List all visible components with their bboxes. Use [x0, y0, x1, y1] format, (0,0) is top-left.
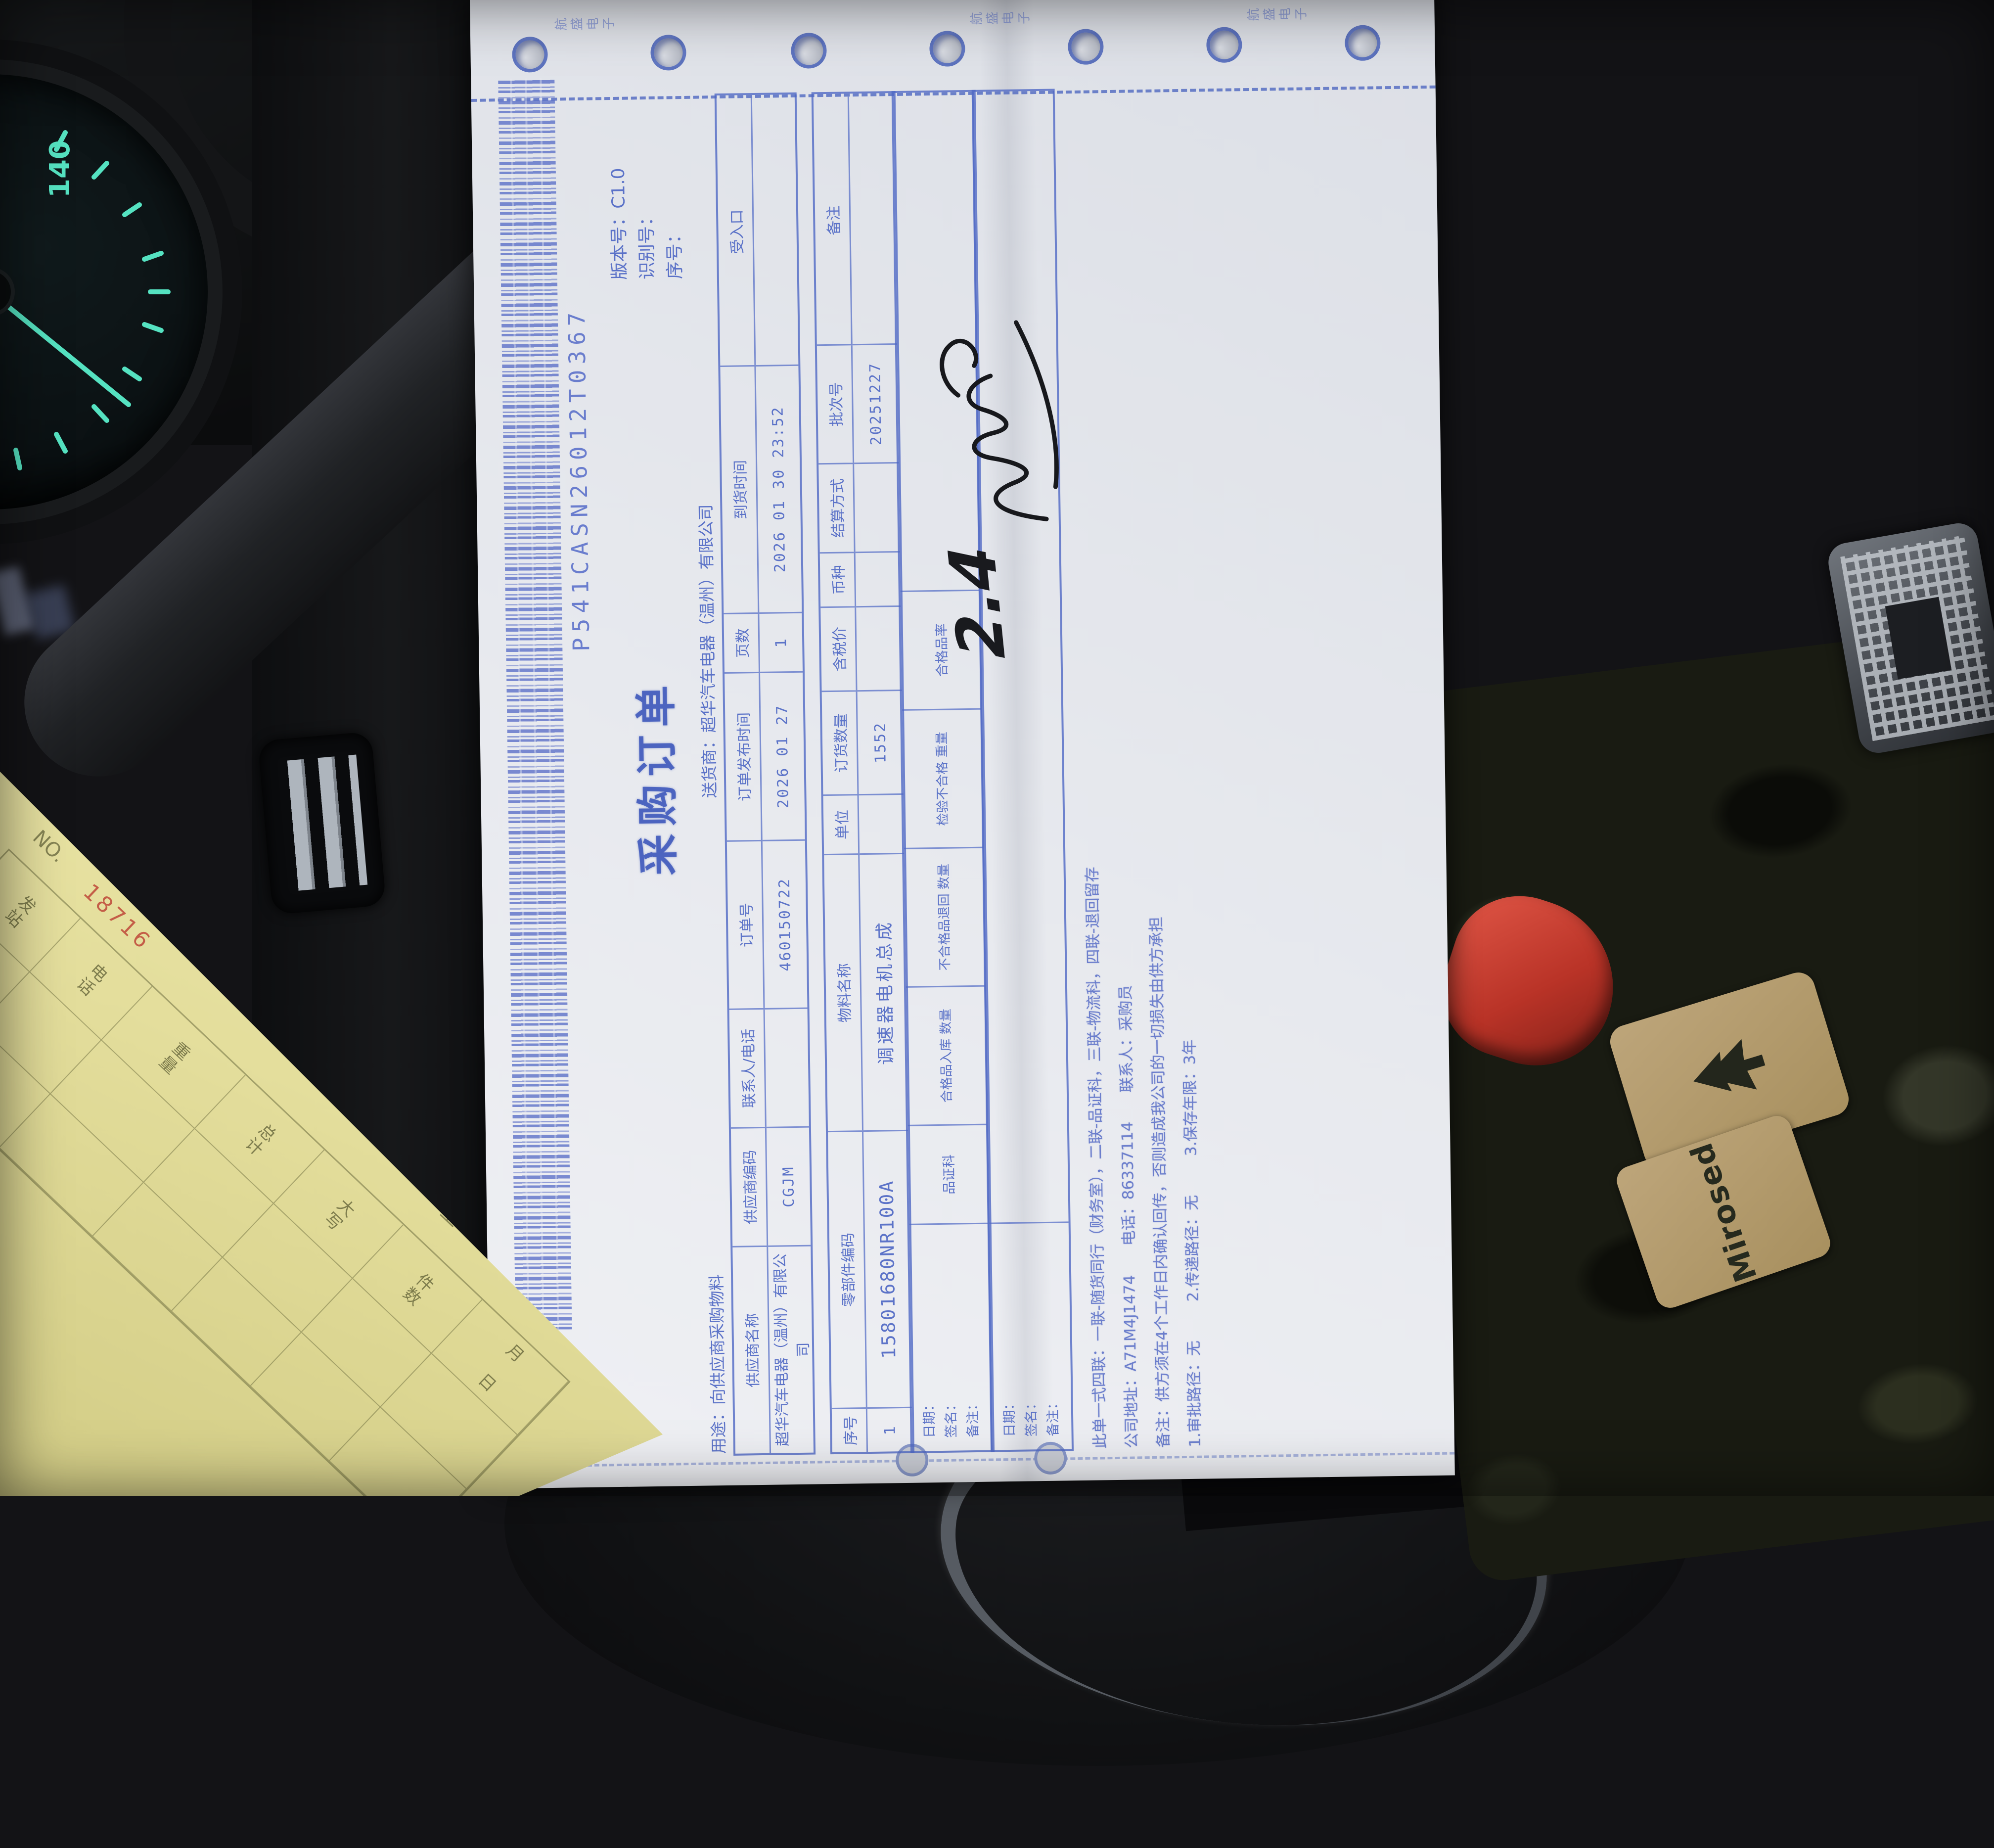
sign-block: 日期： 签名： 备注：: [990, 1221, 1072, 1450]
speedometer-ticks: 140: [0, 74, 208, 509]
item-cell: [856, 605, 902, 690]
empty-cell: [974, 94, 1069, 1223]
left-perforation-line: [490, 1452, 1454, 1468]
item-cell: 调速器电机总成: [860, 853, 908, 1130]
waybill-no-label: NO.: [28, 826, 70, 867]
sprocket-hole: [1206, 27, 1242, 63]
barcode-text: P541CASN26012T0367: [563, 307, 595, 651]
info-header: 到货时间: [720, 365, 759, 613]
info-value: 2026 01 30 23:52: [756, 365, 802, 612]
patch-text-label: Mirosed: [1683, 1137, 1765, 1286]
footer-line: 1.审批路径：无 2.传递路径：无 3.保存年限：3年: [1177, 1039, 1205, 1447]
barcode: [498, 78, 572, 1330]
item-header: 单位: [823, 794, 860, 854]
item-header: 含税价: [820, 606, 857, 691]
speedometer-gauge: 140: [0, 59, 223, 524]
tree-icon: [1671, 1012, 1788, 1129]
strip-print-text: 航盛电子: [969, 9, 1033, 29]
info-header: 页数: [724, 612, 760, 672]
item-header: 零部件编码: [828, 1130, 867, 1408]
item-cell: [849, 96, 897, 344]
wheel-hub-emblem: [258, 732, 386, 915]
speedometer-label: 140: [44, 140, 76, 198]
info-value: 2026 01 27: [760, 671, 805, 840]
version-line: 版本号：C1.0: [605, 168, 634, 280]
sprocket-hole: [1068, 29, 1104, 65]
date-label: 日期：: [918, 1398, 941, 1438]
sprocket-strip: 航盛电子 航盛电子 航盛电子: [470, 0, 1436, 102]
item-cell: [856, 551, 901, 606]
item-cell: 20251227: [853, 343, 899, 462]
item-cell: [854, 462, 900, 552]
info-value: 1: [759, 612, 803, 672]
type-label: 普通: [48, 791, 91, 832]
sprocket-hole: [929, 31, 965, 67]
sign-block: 日期： 签名： 备注：: [909, 1223, 993, 1451]
consignee-line: 送货商：超华汽车电器（温州）有限公司: [692, 504, 720, 798]
info-value: [765, 1008, 809, 1127]
footer-line: 备注：供方须在4个工作日内确认回传，否则造成我公司的一切损失由供方承担: [1143, 917, 1173, 1448]
item-cell: 1: [867, 1407, 912, 1452]
strip-print-text: 航盛电子: [1246, 5, 1310, 25]
gauge-needle: [0, 292, 129, 405]
doc-title: 采购订单: [623, 677, 685, 876]
info-header: 订单发布时间: [725, 672, 763, 840]
dept-label: 品证科: [908, 1124, 990, 1224]
item-cell: 1552: [858, 690, 904, 794]
item-header: 结算方式: [818, 462, 856, 552]
sign-label: 签名：: [940, 1397, 962, 1438]
info-value: [752, 97, 799, 365]
info-value: 460150722: [763, 839, 808, 1008]
info-value: CGJM: [767, 1126, 811, 1246]
item-header: 订货数量: [822, 690, 859, 794]
checkbox-icon: [81, 819, 109, 847]
sprocket-hole: [1345, 25, 1381, 61]
item-header: 物料名称: [824, 853, 863, 1131]
info-header: 供应商编码: [731, 1127, 768, 1246]
footer-line: 此单一式四联：一联-随货同行（财务室），二联-品证科，三联-物流科，四联-退回留…: [1080, 867, 1110, 1449]
note-label: 备注：: [962, 1397, 984, 1438]
doc-meta-block: 版本号：C1.0 识别号： 序号：: [605, 167, 689, 280]
item-header: 备注: [814, 96, 853, 344]
date-label: 日期：: [999, 1397, 1021, 1437]
strip-print-text: 航盛电子: [554, 15, 618, 35]
usage-line: 用途：向供应商采购物料: [703, 1274, 729, 1454]
sprocket-hole: [791, 33, 827, 69]
sign-label: 签名：: [1021, 1396, 1043, 1437]
info-header: 联系人/电话: [729, 1008, 767, 1127]
check-header: 不合格品退回 数量: [904, 847, 986, 986]
purchase-order-document: 航盛电子 航盛电子 航盛电子 P541CASN26012T0367 版本号：C1…: [470, 0, 1455, 1489]
sprocket-hole: [650, 35, 686, 71]
seq-line: 序号：: [660, 167, 689, 279]
item-cell: 15801680NR100A: [863, 1130, 912, 1407]
id-line: 识别号：: [633, 167, 662, 279]
item-header: 批次号: [817, 344, 854, 463]
check-header: 合格品入库 数量: [906, 985, 988, 1125]
footer-line: 公司地址：A71M4J1474 电话：86337114 联系人：采购员: [1113, 985, 1141, 1448]
note-label: 备注：: [1042, 1396, 1065, 1436]
emblem-bars-icon: [276, 754, 367, 891]
sprocket-hole: [512, 37, 548, 73]
handwritten-note: 2.4: [935, 546, 1020, 659]
info-header: 供应商名称: [732, 1246, 771, 1454]
item-cell: [859, 793, 904, 853]
item-header: 币种: [820, 552, 857, 606]
info-table: 供应商名称 供应商编码 联系人/电话 订单号 订单发布时间 页数 到货时间 受入…: [715, 92, 816, 1456]
item-header: 序号: [832, 1407, 868, 1452]
info-header: 受入口: [717, 98, 756, 366]
info-value: 超华汽车电器（温州）有限公司: [768, 1245, 814, 1453]
info-header: 订单号: [727, 840, 765, 1009]
check-header: 检验不合格 重量: [902, 708, 984, 848]
